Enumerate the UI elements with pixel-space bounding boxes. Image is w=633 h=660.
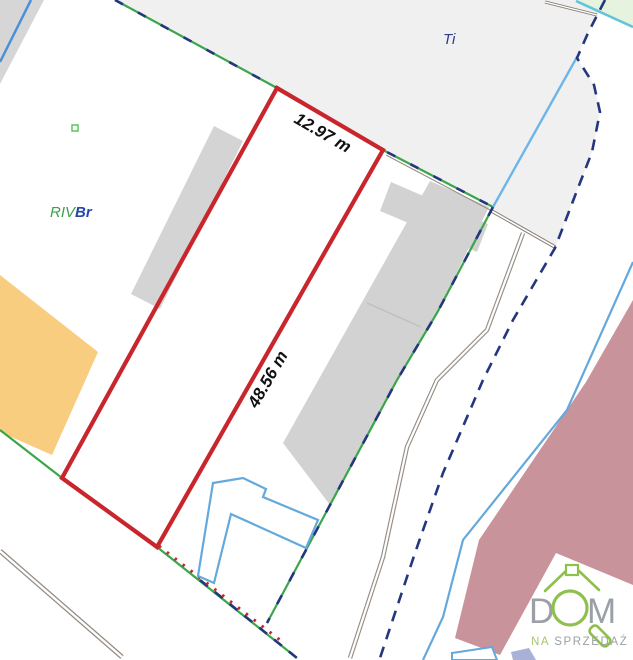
tagline-label: NASPRZEDAŻ bbox=[531, 635, 628, 648]
tagline-na: NA bbox=[531, 636, 550, 648]
soil-class-green-part: RIV bbox=[50, 204, 77, 221]
soil-class-label: RIVBr bbox=[50, 204, 93, 221]
land-use-label: Ti bbox=[443, 31, 456, 48]
brand-letter-m: M bbox=[587, 592, 617, 631]
cadastral-map-view: Ti RIVBr 12.97 m 48.56 m D M NASPRZEDAŻ bbox=[0, 0, 633, 660]
cadastral-map: Ti RIVBr 12.97 m 48.56 m D M NASPRZEDAŻ bbox=[0, 0, 633, 660]
soil-class-blue-part: Br bbox=[75, 204, 93, 221]
house-chimney-icon bbox=[566, 565, 578, 575]
brand-letter-d: D bbox=[529, 592, 555, 631]
tagline-sprzedaz: SPRZEDAŻ bbox=[554, 635, 628, 648]
